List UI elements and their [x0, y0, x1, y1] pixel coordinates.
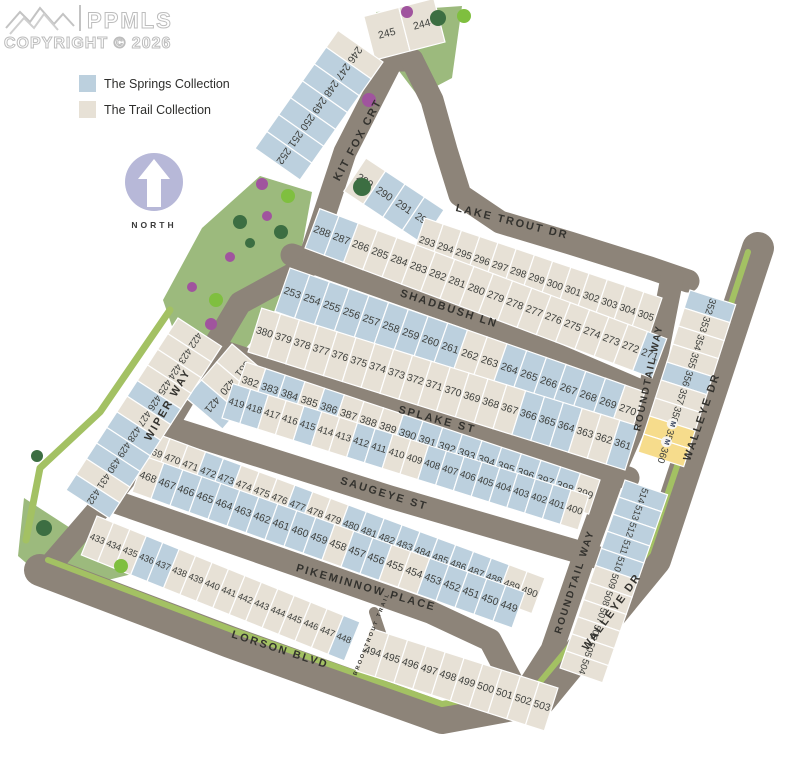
legend-swatch-springs: [79, 75, 96, 92]
legend: The Springs Collection The Trail Collect…: [79, 75, 230, 118]
legend-label-trail: The Trail Collection: [104, 103, 211, 117]
tree-icon: [274, 225, 288, 239]
tree-icon: [114, 559, 128, 573]
north-arrow-label: NORTH: [131, 220, 176, 230]
tree-icon: [36, 520, 52, 536]
tree-icon: [209, 293, 223, 307]
tree-icon: [457, 9, 471, 23]
bush-icon: [187, 282, 197, 292]
site-plan-map: 2452442462472482492502512522892902912922…: [0, 0, 791, 768]
north-arrow: NORTH: [125, 153, 183, 230]
bush-icon: [205, 318, 217, 330]
tree-icon: [31, 450, 43, 462]
legend-label-springs: The Springs Collection: [104, 77, 230, 91]
bush-icon: [401, 6, 413, 18]
watermark-brand: PPMLS: [87, 8, 173, 33]
tree-icon: [353, 178, 371, 196]
site-plan-page: 2452442462472482492502512522892902912922…: [0, 0, 791, 768]
bush-icon: [225, 252, 235, 262]
tree-icon: [245, 238, 255, 248]
watermark-copyright: COPYRIGHT © 2026: [4, 35, 171, 52]
bush-icon: [256, 178, 268, 190]
tree-icon: [430, 10, 446, 26]
tree-icon: [281, 189, 295, 203]
watermark: PPMLS COPYRIGHT © 2026: [4, 5, 173, 52]
legend-swatch-trail: [79, 101, 96, 118]
bush-icon: [262, 211, 272, 221]
tree-icon: [233, 215, 247, 229]
